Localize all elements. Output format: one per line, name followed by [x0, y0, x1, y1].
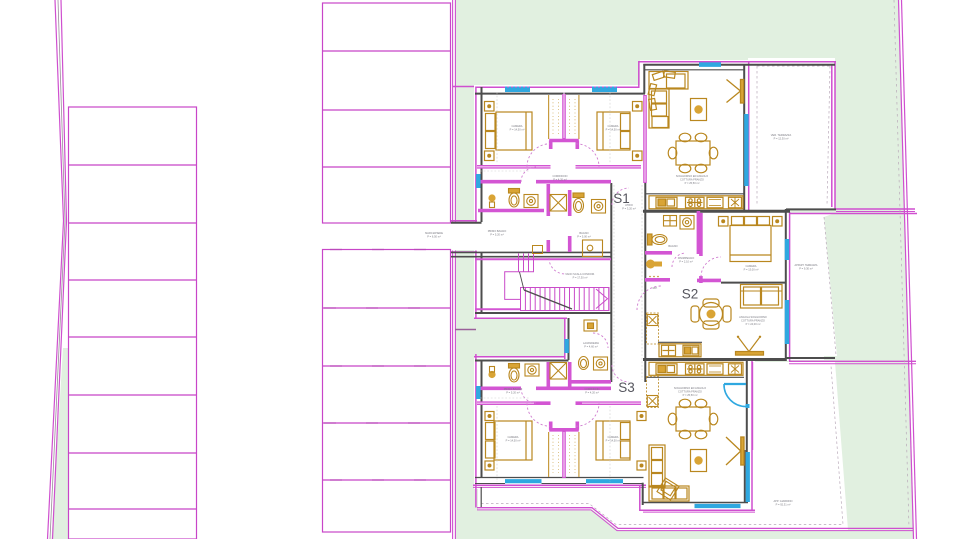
svg-text:P = 12,30 m²: P = 12,30 m² [774, 137, 789, 141]
svg-text:CAMERA: CAMERA [507, 435, 518, 439]
svg-text:CAMERA: CAMERA [607, 435, 618, 439]
svg-text:PRIMO BAGNO: PRIMO BAGNO [488, 229, 507, 233]
svg-text:S3: S3 [618, 380, 635, 395]
svg-text:CORRIDOIO: CORRIDOIO [585, 387, 600, 391]
svg-text:P = 4,20 m²: P = 4,20 m² [553, 178, 567, 182]
svg-text:COTTURA PRANZO: COTTURA PRANZO [741, 319, 765, 323]
svg-text:P = 5,00 m²: P = 5,00 m² [577, 235, 591, 239]
svg-text:P = 3,20 m²: P = 3,20 m² [622, 207, 636, 211]
svg-text:BAGNO: BAGNO [668, 244, 677, 248]
svg-text:MARCIAPIEDE: MARCIAPIEDE [425, 231, 443, 235]
svg-text:P = 25,50 m²: P = 25,50 m² [683, 393, 698, 397]
svg-text:P = 5,20 m²: P = 5,20 m² [506, 391, 520, 395]
svg-text:COTTURA PRANZO: COTTURA PRANZO [680, 178, 704, 182]
svg-text:SOGGIORNO ED ANGOLO: SOGGIORNO ED ANGOLO [674, 386, 706, 390]
svg-text:ANGOLA SOGGIORNO: ANGOLA SOGGIORNO [739, 315, 767, 319]
svg-text:CAMERA: CAMERA [607, 124, 618, 128]
svg-text:P = 5,20 m²: P = 5,20 m² [490, 233, 504, 237]
svg-text:DISIMPEGNO: DISIMPEGNO [678, 256, 695, 260]
svg-text:P = 24,00 m²: P = 24,00 m² [746, 322, 761, 326]
svg-text:P = 92,31 m²: P = 92,31 m² [776, 503, 791, 507]
svg-text:CORRIDOIO: CORRIDOIO [553, 174, 568, 178]
svg-text:P = 13,00 m²: P = 13,00 m² [744, 268, 759, 272]
svg-text:P = 25,50 m²: P = 25,50 m² [685, 181, 700, 185]
svg-text:P = 2,10 m²: P = 2,10 m² [679, 260, 693, 264]
svg-text:P = 14,50 m²: P = 14,50 m² [506, 439, 521, 443]
svg-text:P = 4,60 m²: P = 4,60 m² [584, 345, 598, 349]
svg-text:SOGGIORNO ED ANGOLO: SOGGIORNO ED ANGOLO [676, 174, 708, 178]
svg-text:P = 4,20 m²: P = 4,20 m² [585, 391, 599, 395]
svg-text:COTTURA PRANZO: COTTURA PRANZO [678, 390, 702, 394]
svg-text:S2: S2 [682, 287, 699, 302]
svg-text:RIP.: RIP. [653, 286, 658, 290]
svg-text:CAMERA: CAMERA [511, 124, 522, 128]
svg-text:P = 14,50 m²: P = 14,50 m² [510, 128, 525, 132]
svg-text:P = 17,30 m²: P = 17,30 m² [573, 276, 588, 280]
svg-text:ATRIO: ATRIO [625, 203, 633, 207]
svg-text:CAMERA: CAMERA [745, 264, 756, 268]
svg-text:APP. GIARDINO: APP. GIARDINO [773, 499, 792, 503]
svg-text:LAVANDERIA: LAVANDERIA [583, 341, 599, 345]
svg-text:BAGNO: BAGNO [579, 231, 588, 235]
svg-text:P = 14,50 m²: P = 14,50 m² [606, 439, 621, 443]
svg-text:VER. TERRAZZA: VER. TERRAZZA [771, 133, 792, 137]
svg-text:P = 9,30 m²: P = 9,30 m² [799, 267, 813, 271]
svg-text:P = 6,50 m²: P = 6,50 m² [427, 235, 441, 239]
svg-text:PRIMO BAGNO: PRIMO BAGNO [504, 387, 523, 391]
svg-text:P = 14,50 m²: P = 14,50 m² [606, 128, 621, 132]
svg-text:VANO SCALA CONDOM.: VANO SCALA CONDOM. [565, 272, 595, 276]
